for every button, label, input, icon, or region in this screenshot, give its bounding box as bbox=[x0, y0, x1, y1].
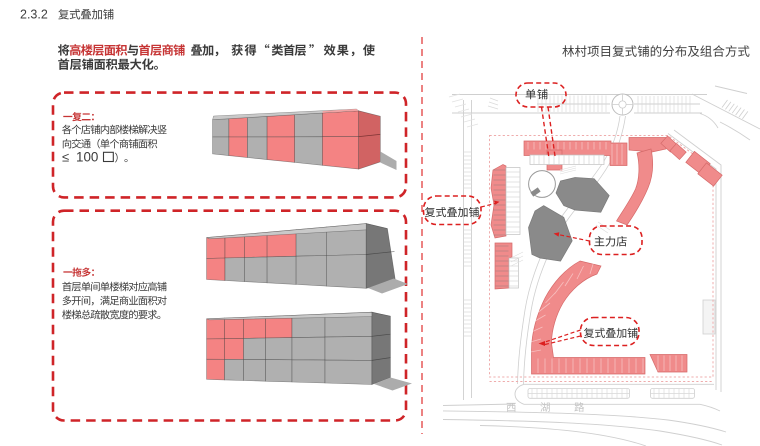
svg-text:2.3.2: 2.3.2 bbox=[20, 8, 48, 22]
svg-text:≤: ≤ bbox=[62, 150, 69, 165]
svg-text:100: 100 bbox=[76, 150, 98, 165]
